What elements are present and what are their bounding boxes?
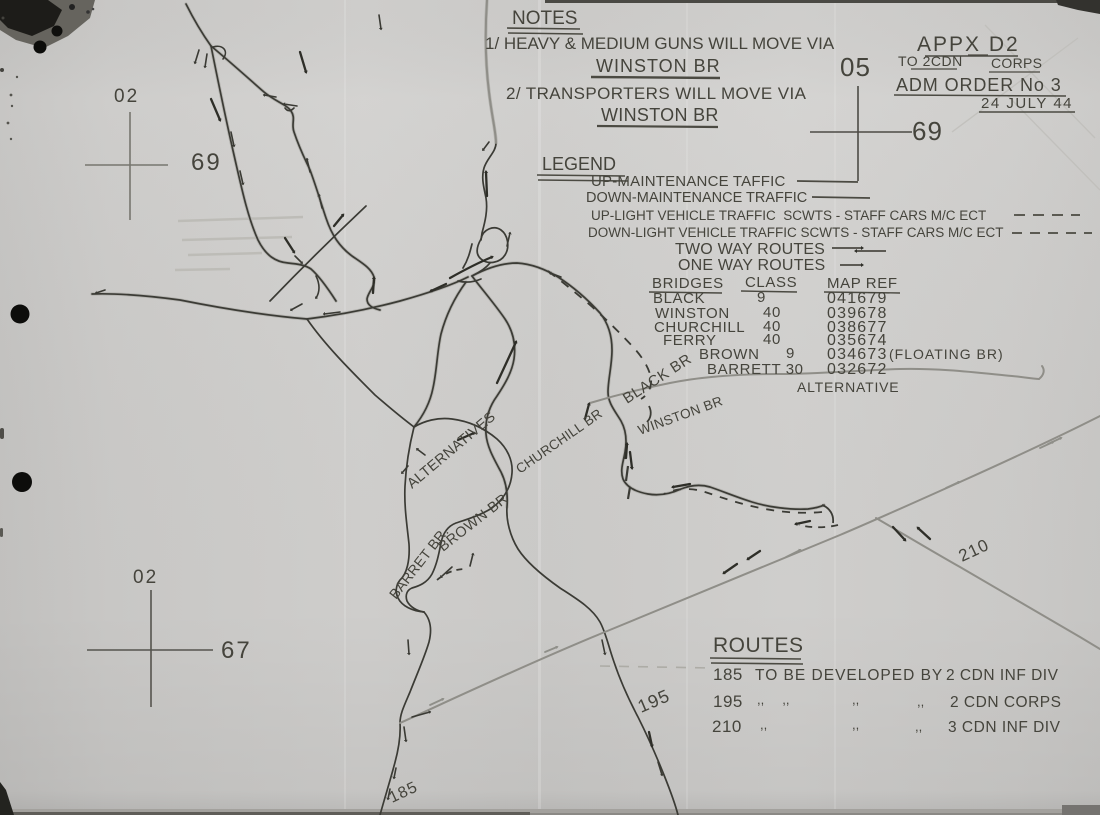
svg-text:CLASS: CLASS [745,274,797,291]
svg-text:9: 9 [786,345,795,362]
svg-text:69: 69 [912,116,943,146]
svg-text:2 CDN CORPS: 2 CDN CORPS [950,694,1061,711]
svg-text:(FLOATING BR): (FLOATING BR) [889,346,1004,362]
svg-text:1/ HEAVY & MEDIUM GUNS WILL MO: 1/ HEAVY & MEDIUM GUNS WILL MOVE VIA [485,34,835,53]
svg-text:40: 40 [763,331,781,348]
svg-text:WINSTON BR: WINSTON BR [601,105,719,125]
svg-text:,,: ,, [852,692,859,707]
svg-text:210: 210 [712,717,742,736]
svg-text:,,: ,, [917,694,924,709]
svg-text:67: 67 [221,637,252,664]
svg-text:TWO WAY ROUTES: TWO WAY ROUTES [675,241,825,258]
svg-text:DOWN-MAINTENANCE TRAFFIC: DOWN-MAINTENANCE TRAFFIC [586,190,807,206]
svg-text:DOWN-LIGHT VEHICLE TRAFFIC SCW: DOWN-LIGHT VEHICLE TRAFFIC SCWTS - STAFF… [588,225,1004,240]
svg-text:,,: ,, [915,719,922,734]
svg-text:3 CDN INF DIV: 3 CDN INF DIV [948,719,1061,736]
svg-text:2/ TRANSPORTERS WILL MOVE VIA: 2/ TRANSPORTERS WILL MOVE VIA [506,84,807,103]
svg-text:ADM ORDER No 3: ADM ORDER No 3 [896,75,1062,95]
svg-text:CORPS: CORPS [991,55,1042,71]
svg-text:TO 2CDN: TO 2CDN [898,53,963,69]
svg-text:UP-MAINTENANCE TAFFIC: UP-MAINTENANCE TAFFIC [591,173,785,190]
svg-text:,, ,,: ,, ,, [757,692,790,707]
svg-text:02: 02 [133,567,158,588]
svg-text:69: 69 [191,149,222,176]
svg-text:24 JULY 44: 24 JULY 44 [981,95,1073,112]
svg-text:195: 195 [713,692,743,711]
svg-text:ROUTES: ROUTES [713,634,804,657]
svg-text:185: 185 [713,665,743,684]
svg-text:BARRETT 30: BARRETT 30 [707,361,804,378]
svg-text:ONE WAY ROUTES: ONE WAY ROUTES [678,257,825,274]
svg-text:05: 05 [840,52,871,82]
svg-text:2 CDN INF DIV: 2 CDN INF DIV [946,667,1059,684]
svg-text:NOTES: NOTES [512,8,577,29]
svg-text:TO BE DEVELOPED BY: TO BE DEVELOPED BY [755,667,943,684]
svg-text:WINSTON BR: WINSTON BR [596,56,721,76]
svg-text:,,: ,, [760,717,767,732]
svg-text:032672: 032672 [827,361,888,378]
svg-text:ALTERNATIVE: ALTERNATIVE [797,379,899,395]
svg-text:UP-LIGHT VEHICLE TRAFFIC SCWT: UP-LIGHT VEHICLE TRAFFIC SCWTS - STAFF C… [591,208,986,223]
svg-text:02: 02 [114,86,139,107]
svg-text:LEGEND: LEGEND [542,154,616,174]
svg-text:,,: ,, [852,717,859,732]
